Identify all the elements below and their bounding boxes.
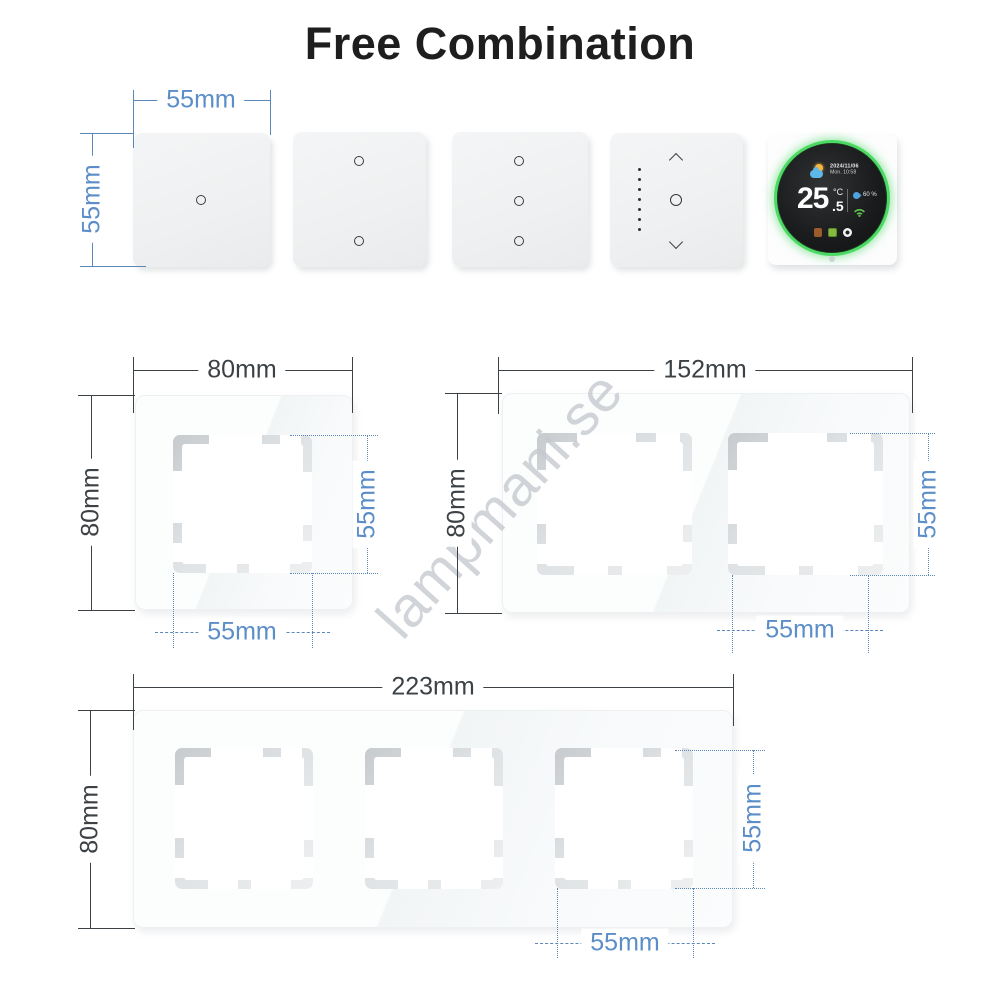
frame-claw-notch bbox=[728, 544, 737, 564]
frame-claw-notch bbox=[683, 471, 692, 525]
opening-inner bbox=[737, 442, 874, 566]
dimmer-level-dot bbox=[638, 188, 641, 191]
frame-claw-notch bbox=[251, 880, 291, 889]
dimension-tick bbox=[133, 357, 134, 413]
frame-claw-notch bbox=[684, 857, 693, 878]
switch-height-dimension-label: 55mm bbox=[78, 155, 107, 242]
dimension-tick bbox=[78, 610, 135, 611]
dimension-tick bbox=[133, 674, 134, 730]
triple-inner-height-label: 55mm bbox=[739, 774, 768, 861]
touch-button-icon bbox=[514, 196, 524, 206]
frame-claw-notch bbox=[281, 748, 302, 757]
dimension-line bbox=[693, 888, 694, 958]
single-inner-width-label: 55mm bbox=[198, 618, 285, 647]
opening-inner bbox=[184, 757, 304, 880]
dimmer-level-dot bbox=[638, 178, 641, 181]
frame-claw-notch bbox=[765, 566, 799, 575]
dimmer-level-dot bbox=[638, 228, 641, 231]
dimmer-level-dot bbox=[638, 168, 641, 171]
dimmer-level-dot bbox=[638, 208, 641, 211]
reset-button-dot bbox=[829, 256, 835, 262]
time-text: Mon. 10:58 bbox=[830, 169, 890, 175]
cloud-icon bbox=[810, 170, 823, 178]
dimension-tick bbox=[80, 266, 146, 267]
dimension-tick bbox=[80, 133, 133, 134]
frame-claw-notch bbox=[173, 543, 182, 562]
temperature-value: 25 bbox=[797, 184, 828, 214]
touch-button-icon bbox=[514, 156, 524, 166]
switch-width-dimension-label: 55mm bbox=[157, 86, 244, 115]
chevron-down-icon bbox=[669, 235, 683, 249]
thermostat: 2024/11/06 Mon. 10:58 25 °C .5 60 % bbox=[768, 135, 897, 265]
frame-triple-opening bbox=[365, 748, 503, 889]
frame-claw-notch bbox=[494, 857, 503, 878]
frame-claw-notch bbox=[211, 748, 263, 757]
frame-claw-notch bbox=[471, 748, 492, 757]
divider bbox=[847, 189, 848, 212]
frame-claw-notch bbox=[622, 566, 667, 575]
frame-claw-notch bbox=[303, 541, 312, 562]
double-height-label: 80mm bbox=[443, 459, 472, 546]
frame-double-opening bbox=[728, 433, 883, 575]
dimension-line bbox=[868, 575, 869, 653]
frame-claw-notch bbox=[398, 880, 428, 889]
dimension-tick bbox=[733, 674, 734, 726]
frame-claw-notch bbox=[874, 471, 883, 525]
frame-claw-notch bbox=[249, 564, 289, 573]
dimension-tick bbox=[133, 90, 134, 148]
frame-claw-notch bbox=[768, 433, 827, 442]
thermostat-display: 2024/11/06 Mon. 10:58 25 °C .5 60 % bbox=[774, 140, 890, 256]
product-infographic: Free Combination lampmani.se 55mm 55mm bbox=[0, 0, 1000, 1000]
dimension-line bbox=[850, 433, 935, 434]
frame-claw-notch bbox=[874, 542, 883, 563]
opening-inner bbox=[182, 444, 303, 564]
dimension-line bbox=[732, 575, 733, 653]
frame-claw-notch bbox=[574, 566, 608, 575]
opening-inner bbox=[564, 757, 684, 880]
frame-claw-notch bbox=[813, 566, 858, 575]
single-width-label: 80mm bbox=[198, 356, 285, 385]
dimension-tick bbox=[498, 357, 499, 414]
heating-mode-icon bbox=[814, 228, 822, 237]
eco-mode-icon bbox=[828, 228, 837, 237]
frame-claw-notch bbox=[304, 786, 313, 840]
frame-claw-notch bbox=[684, 786, 693, 840]
dimension-tick bbox=[78, 395, 135, 396]
frame-claw-notch bbox=[728, 470, 737, 524]
dimension-line bbox=[850, 575, 935, 576]
power-icon bbox=[843, 228, 852, 237]
double-width-label: 152mm bbox=[654, 356, 755, 385]
frame-claw-notch bbox=[588, 880, 618, 889]
dimmer-level-dot bbox=[638, 198, 641, 201]
frame-triple-opening bbox=[175, 748, 313, 889]
triple-width-label: 223mm bbox=[382, 673, 483, 702]
frame-claw-notch bbox=[175, 785, 184, 839]
dimension-tick bbox=[270, 90, 271, 135]
switch-1gang bbox=[133, 133, 270, 267]
touch-button-icon bbox=[514, 236, 524, 246]
page-title: Free Combination bbox=[0, 18, 1000, 70]
frame-claw-notch bbox=[208, 880, 238, 889]
switch-3gang bbox=[452, 132, 588, 267]
touch-button-icon bbox=[354, 156, 364, 166]
dimension-line bbox=[173, 573, 174, 648]
frame-claw-notch bbox=[365, 858, 374, 878]
dimmer-level-dot bbox=[638, 218, 641, 221]
single-inner-height-label: 55mm bbox=[353, 460, 382, 547]
frame-claw-notch bbox=[656, 433, 679, 442]
frame-claw-notch bbox=[209, 435, 262, 444]
frame-claw-notch bbox=[304, 857, 313, 878]
frame-claw-notch bbox=[441, 880, 481, 889]
frame-claw-notch bbox=[175, 858, 184, 878]
dimension-tick bbox=[445, 613, 502, 614]
frame-claw-notch bbox=[631, 880, 671, 889]
frame-claw-notch bbox=[591, 748, 643, 757]
frame-claw-notch bbox=[206, 564, 237, 573]
frame-claw-notch bbox=[494, 786, 503, 840]
frame-claw-notch bbox=[683, 542, 692, 563]
temperature-unit: °C bbox=[833, 187, 843, 197]
dimension-line bbox=[312, 573, 313, 648]
temperature-decimal: .5 bbox=[832, 198, 844, 214]
frame-claw-notch bbox=[401, 748, 453, 757]
frame-claw-notch bbox=[173, 471, 182, 523]
frame-claw-notch bbox=[847, 433, 870, 442]
frame-single-opening bbox=[173, 435, 312, 573]
double-inner-width-label: 55mm bbox=[756, 616, 843, 645]
dimension-tick bbox=[445, 393, 502, 394]
touch-button-icon bbox=[196, 195, 206, 205]
single-height-label: 80mm bbox=[77, 458, 106, 545]
frame-claw-notch bbox=[537, 544, 546, 564]
frame-claw-notch bbox=[555, 785, 564, 839]
dimension-tick bbox=[78, 710, 135, 711]
dimension-line bbox=[675, 888, 765, 889]
frame-claw-notch bbox=[280, 435, 301, 444]
touch-button-icon bbox=[670, 194, 682, 206]
dimension-line bbox=[675, 750, 765, 751]
double-inner-height-label: 55mm bbox=[914, 460, 943, 547]
switch-2gang bbox=[293, 132, 426, 267]
triple-height-label: 80mm bbox=[76, 775, 105, 862]
dimension-tick bbox=[912, 357, 913, 413]
opening-inner bbox=[374, 757, 494, 880]
dimension-tick bbox=[78, 928, 135, 929]
dimension-tick bbox=[352, 357, 353, 413]
touch-button-icon bbox=[354, 236, 364, 246]
dimmer-switch bbox=[610, 133, 743, 267]
frame-triple-opening bbox=[555, 748, 693, 889]
dimension-line bbox=[290, 435, 378, 436]
humidity-value: 60 % bbox=[863, 191, 885, 198]
frame-claw-notch bbox=[303, 472, 312, 524]
chevron-up-icon bbox=[669, 153, 683, 167]
frame-claw-notch bbox=[365, 785, 374, 839]
dimension-line bbox=[290, 573, 378, 574]
wifi-icon bbox=[853, 204, 866, 222]
dimension-line bbox=[557, 888, 558, 958]
datetime-block: 2024/11/06 Mon. 10:58 bbox=[830, 163, 890, 175]
frame-claw-notch bbox=[555, 858, 564, 878]
triple-inner-width-label: 55mm bbox=[581, 929, 668, 958]
